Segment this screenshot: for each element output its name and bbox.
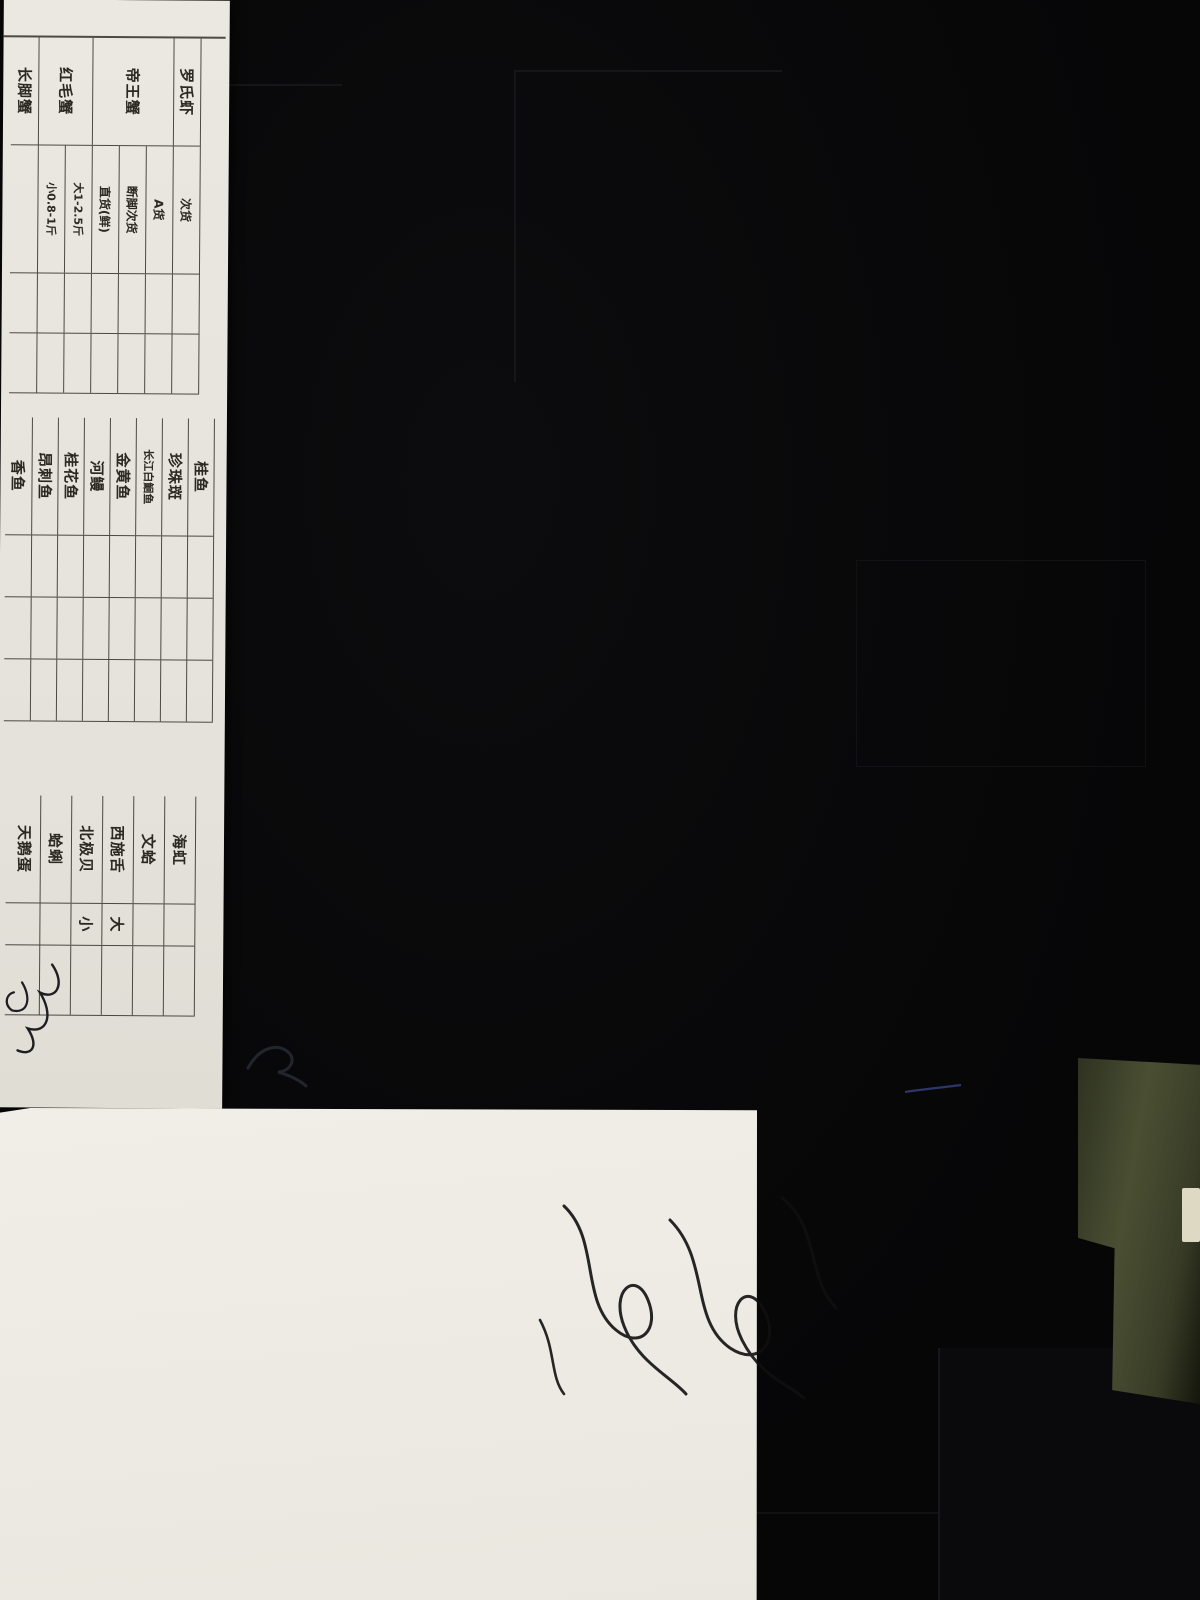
- tray-groove: [514, 70, 782, 382]
- receive-form-row: 冷菜: [470, 857, 495, 1091]
- item-name: 金黄鱼: [109, 418, 136, 535]
- item-spec: A货: [145, 146, 173, 273]
- item-name: 昂刺鱼: [31, 417, 58, 534]
- receive-form-rows: 粤菜海鲜池冷菜冷菜冷菜粤菜海鲜池冷菜: [395, 857, 595, 1091]
- item-name: 海虹: [164, 796, 196, 903]
- department-name: 冷菜: [521, 923, 545, 1008]
- item-name: 西施舌: [102, 796, 134, 903]
- item-spec: 直货(鲜): [91, 146, 119, 273]
- department-name: 粤菜: [571, 923, 595, 1008]
- department-name: 冷菜: [396, 923, 420, 1008]
- receive-form-row: 粤菜: [445, 857, 470, 1091]
- receive-form-header: 收货仓库: [595, 857, 621, 1091]
- paper-chip: [1182, 1188, 1200, 1242]
- receive-form-row: 冷菜: [395, 857, 420, 1091]
- receive-form-row: 海鲜池: [545, 857, 570, 1091]
- item-spec: 次货: [172, 146, 200, 273]
- item-name: 长脚蟹: [11, 37, 39, 144]
- item-spec: 大1-2.5斤: [64, 146, 92, 273]
- item-name: 天鹅蛋: [9, 795, 41, 902]
- item-name: 文蛤: [133, 796, 165, 903]
- department-name: 粤菜: [446, 923, 470, 1008]
- handwritten-marks: [0, 954, 74, 1065]
- size-mark: 小: [70, 904, 101, 945]
- department-name: 冷菜: [496, 923, 520, 1008]
- blue-border-extension: [905, 1078, 965, 1102]
- receive-form: 收货仓库 粤菜海鲜池冷菜冷菜冷菜粤菜海鲜池冷菜: [389, 857, 621, 1093]
- item-name: 蛤蜊: [40, 795, 72, 902]
- item-name: 北极贝: [71, 796, 103, 903]
- receive-form-row: 海鲜池: [420, 857, 445, 1091]
- item-spec: 断脚次货: [118, 146, 146, 273]
- item-spec: 小0.8-1斤: [37, 145, 65, 272]
- department-name: 海鲜池: [421, 923, 445, 1008]
- item-name: 帝王蟹: [92, 38, 174, 146]
- department-name: 冷菜: [471, 923, 495, 1008]
- corner-pen-squiggle: [240, 1028, 310, 1088]
- receive-form-signatures: [520, 1180, 840, 1410]
- receive-form-row: 冷菜: [495, 857, 520, 1091]
- price-list-rotated-content: 罗氏虾 帝王蟹 红毛蟹 长脚蟹 次货 A货 断脚次货 直货(鲜) 大1-2.5斤…: [0, 0, 226, 1101]
- item-name: 红毛蟹: [38, 37, 93, 144]
- receive-form-row: 冷菜: [520, 857, 545, 1091]
- price-list-section: 桂鱼 珍珠斑 长江白鮰鱼 金黄鱼 河鳗 桂花鱼 昂刺鱼 香鱼: [4, 417, 215, 722]
- item-name: 珍珠斑: [161, 418, 188, 535]
- item-name: 罗氏虾: [173, 38, 201, 145]
- item-spec: [11, 145, 38, 272]
- tray-groove: [856, 560, 1146, 767]
- item-name: 香鱼: [5, 417, 32, 534]
- item-name: 桂花鱼: [57, 418, 84, 535]
- item-name: 长江白鮰鱼: [135, 418, 162, 535]
- size-mark: 大: [101, 904, 132, 945]
- receive-form-row: 粤菜: [570, 857, 595, 1091]
- item-name: 河鳗: [83, 418, 110, 535]
- department-name: 海鲜池: [546, 923, 570, 1008]
- item-name: 桂鱼: [187, 419, 214, 536]
- price-list-paper: 罗氏虾 帝王蟹 红毛蟹 长脚蟹 次货 A货 断脚次货 直货(鲜) 大1-2.5斤…: [0, 0, 230, 1109]
- photo-of-delivery-receipt: 罗氏虾 帝王蟹 红毛蟹 长脚蟹 次货 A货 断脚次货 直货(鲜) 大1-2.5斤…: [0, 0, 1200, 1600]
- price-list-section: 罗氏虾 帝王蟹 红毛蟹 长脚蟹 次货 A货 断脚次货 直货(鲜) 大1-2.5斤…: [9, 37, 201, 394]
